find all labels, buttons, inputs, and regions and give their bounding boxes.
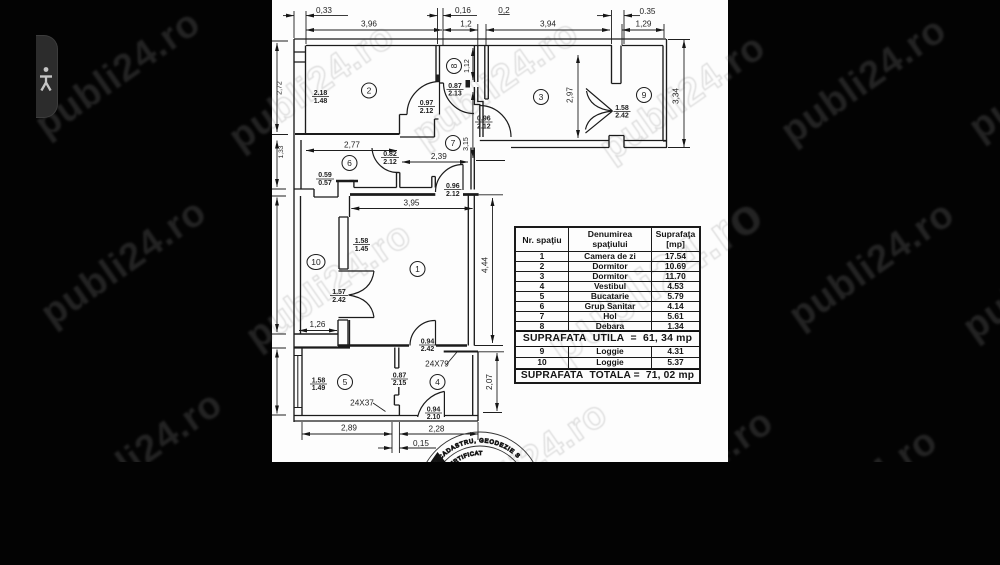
svg-text:0.96: 0.96 — [446, 183, 460, 190]
svg-text:0.94: 0.94 — [427, 407, 441, 414]
svg-text:2.12: 2.12 — [420, 108, 434, 115]
svg-text:2,28: 2,28 — [429, 425, 445, 434]
svg-text:0.87: 0.87 — [393, 373, 407, 380]
svg-text:2,97: 2,97 — [566, 87, 575, 103]
svg-text:1,29: 1,29 — [636, 20, 652, 29]
svg-text:3,95: 3,95 — [404, 199, 420, 208]
svg-text:0.97: 0.97 — [420, 100, 434, 107]
svg-text:2,72: 2,72 — [277, 81, 284, 95]
svg-text:2,89: 2,89 — [341, 424, 357, 433]
svg-text:0.82: 0.82 — [383, 151, 397, 158]
svg-text:0.59: 0.59 — [318, 172, 332, 179]
svg-text:3,94: 3,94 — [540, 20, 556, 29]
svg-text:0.94: 0.94 — [421, 339, 435, 346]
svg-text:2.42: 2.42 — [615, 113, 629, 120]
svg-text:2.18: 2.18 — [314, 90, 328, 97]
svg-text:2: 2 — [367, 86, 372, 96]
svg-text:24X37: 24X37 — [350, 399, 374, 408]
svg-text:2.10: 2.10 — [427, 414, 441, 421]
svg-text:0,15: 0,15 — [413, 439, 429, 448]
svg-text:2,39: 2,39 — [431, 152, 447, 161]
svg-text:24X79: 24X79 — [425, 360, 449, 369]
svg-text:1.58: 1.58 — [355, 238, 369, 245]
svg-text:0,2: 0,2 — [498, 6, 510, 15]
svg-text:6: 6 — [347, 158, 352, 168]
svg-text:2.42: 2.42 — [421, 346, 435, 353]
svg-text:1,26: 1,26 — [310, 320, 326, 329]
svg-text:0.35: 0.35 — [640, 7, 656, 16]
svg-text:2.42: 2.42 — [332, 297, 346, 304]
svg-text:10: 10 — [311, 257, 321, 267]
svg-text:2,07: 2,07 — [485, 374, 494, 390]
svg-text:1.58: 1.58 — [312, 378, 326, 385]
svg-text:5: 5 — [343, 377, 348, 387]
svg-text:7: 7 — [451, 138, 456, 148]
svg-text:3: 3 — [539, 92, 544, 102]
svg-text:2.15: 2.15 — [393, 380, 407, 387]
svg-text:2.13: 2.13 — [448, 91, 462, 98]
svg-text:4: 4 — [435, 377, 440, 387]
svg-text:0.87: 0.87 — [448, 83, 462, 90]
svg-text:3,34: 3,34 — [672, 88, 681, 104]
svg-text:1.45: 1.45 — [355, 246, 369, 253]
svg-text:0.96: 0.96 — [477, 116, 491, 123]
svg-text:0.57: 0.57 — [318, 180, 332, 187]
svg-text:8: 8 — [449, 63, 459, 68]
svg-text:1.57: 1.57 — [332, 289, 346, 296]
svg-text:3,15: 3,15 — [463, 137, 470, 151]
svg-text:1,12: 1,12 — [464, 59, 471, 73]
svg-text:1: 1 — [415, 264, 420, 274]
svg-text:2.12: 2.12 — [446, 191, 460, 198]
svg-text:2,77: 2,77 — [344, 141, 360, 150]
svg-text:1.48: 1.48 — [314, 98, 328, 105]
svg-text:2.12: 2.12 — [477, 124, 491, 131]
svg-text:2.12: 2.12 — [383, 159, 397, 166]
svg-text:1.49: 1.49 — [312, 385, 326, 392]
svg-text:9: 9 — [642, 90, 647, 100]
svg-text:1,33: 1,33 — [278, 145, 285, 158]
svg-text:1,2: 1,2 — [460, 20, 472, 29]
svg-text:4,44: 4,44 — [481, 257, 490, 273]
svg-text:0,16: 0,16 — [455, 6, 471, 15]
svg-text:1.58: 1.58 — [615, 105, 629, 112]
svg-text:0,33: 0,33 — [316, 6, 332, 15]
svg-text:3,96: 3,96 — [361, 20, 377, 29]
